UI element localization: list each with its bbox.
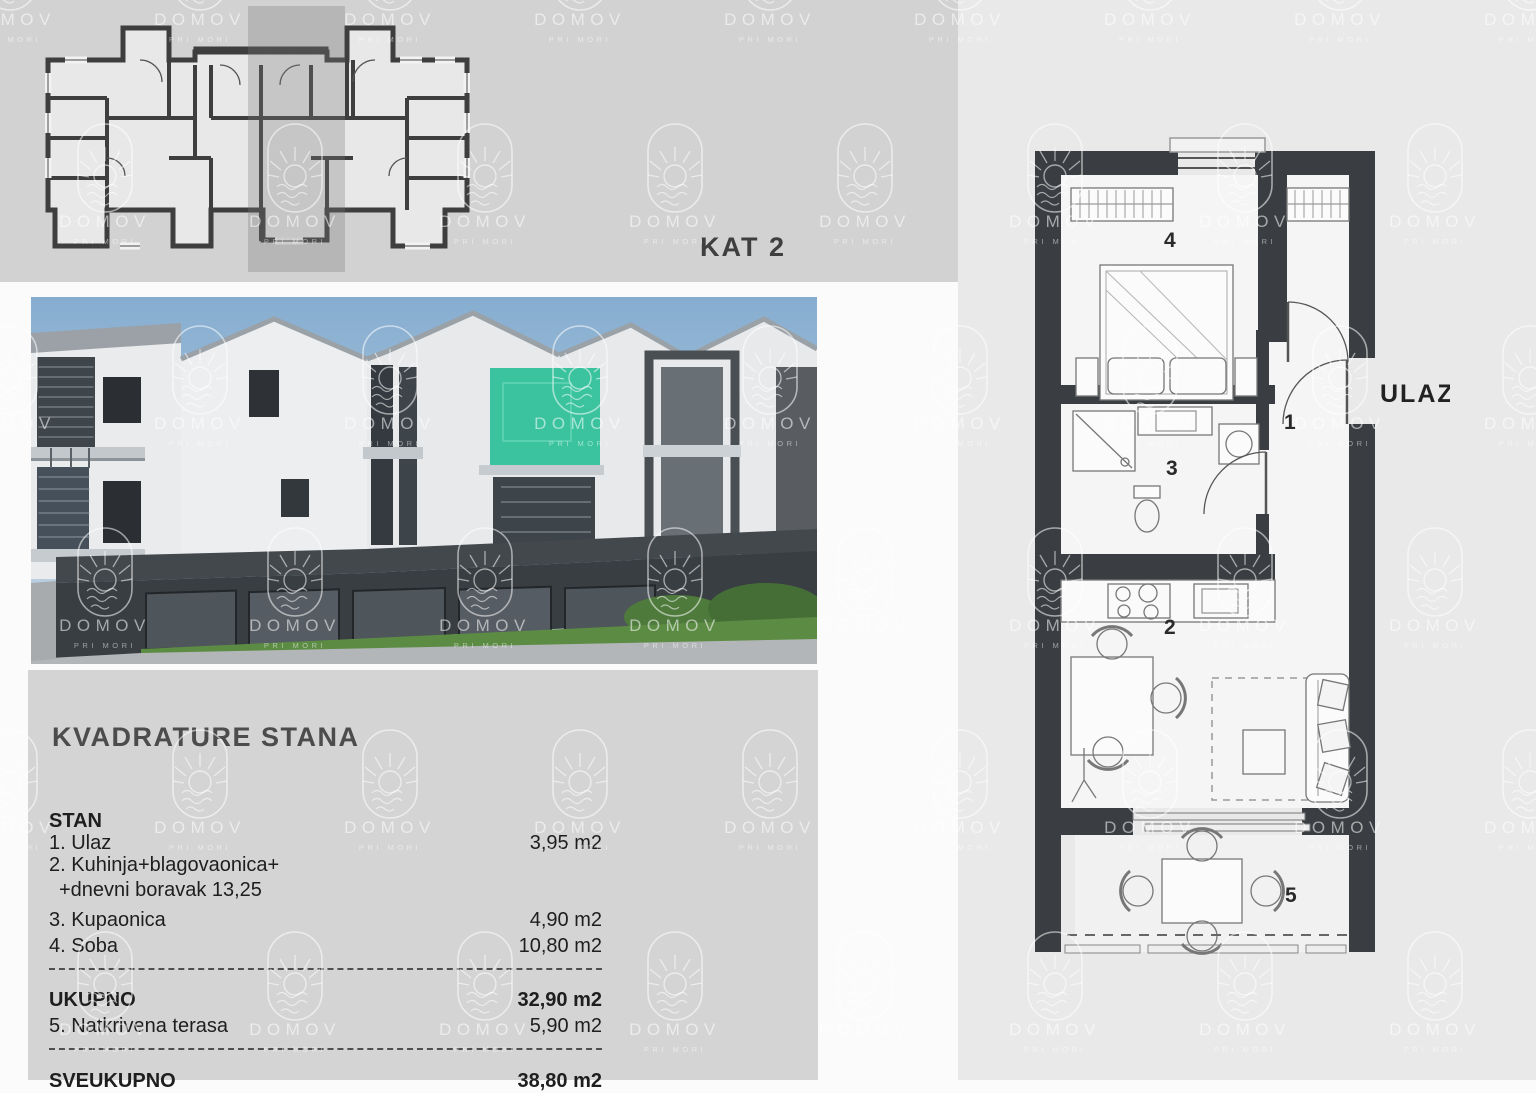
bed-icon: [1100, 265, 1233, 400]
top-band: KAT 2: [0, 0, 958, 282]
entrance-label: ULAZ: [1380, 380, 1450, 408]
bedroom-window-icon: [1170, 138, 1265, 168]
summary-row: 3. Kupaonica4,90 m2: [49, 909, 602, 932]
nightstand-icon: [1235, 358, 1257, 396]
brochure-page: { "header": { "floor_label": "KAT 2" }, …: [0, 0, 1536, 1080]
coffee-table-icon: [1243, 730, 1285, 774]
room-label-2: 2: [1164, 616, 1176, 639]
summary-row: 4. Soba10,80 m2: [49, 935, 602, 958]
wardrobe-icon: [1071, 188, 1173, 221]
summary-row: 1. Ulaz3,95 m2: [49, 832, 602, 855]
room-label-5: 5: [1285, 884, 1297, 907]
shower-icon: [1073, 411, 1135, 471]
summary-row-grand-total: SVEUKUPNO38,80 m2: [49, 1070, 602, 1093]
apartment-floor-plan: 1 2 3 4 5 ULAZ: [1020, 130, 1450, 970]
sliding-door-icon: [1133, 813, 1310, 831]
summary-row: 5. Natkrivena terasa5,90 m2: [49, 1015, 602, 1038]
summary-row-continuation: +dnevni boravak 13,25: [49, 879, 612, 902]
dashed-divider: [49, 968, 602, 970]
highlighted-unit: [490, 368, 600, 468]
sofa-icon: [1306, 674, 1350, 802]
summary-row-total: UKUPNO32,90 m2: [49, 989, 602, 1012]
room-label-4: 4: [1164, 229, 1176, 252]
area-summary-panel: KVADRATURE STANA STAN 1. Ulaz3,95 m2 2. …: [28, 670, 818, 1080]
summary-row: 2. Kuhinja+blagovaonica+: [49, 854, 602, 877]
floor-label: KAT 2: [700, 232, 786, 263]
room-label-3: 3: [1166, 457, 1178, 480]
unit-column-highlight: [248, 6, 345, 272]
nightstand-icon: [1076, 358, 1098, 396]
entry-closet-icon: [1287, 188, 1349, 221]
dashed-divider: [49, 1048, 602, 1050]
driveway: [31, 581, 56, 661]
room-label-1: 1: [1284, 411, 1296, 434]
summary-title: KVADRATURE STANA: [52, 722, 360, 753]
vanity-sink-icon: [1138, 407, 1212, 435]
summary-row-stan: STAN: [49, 810, 602, 833]
balconies-left: [31, 357, 145, 562]
building-render-photo: [31, 297, 817, 664]
